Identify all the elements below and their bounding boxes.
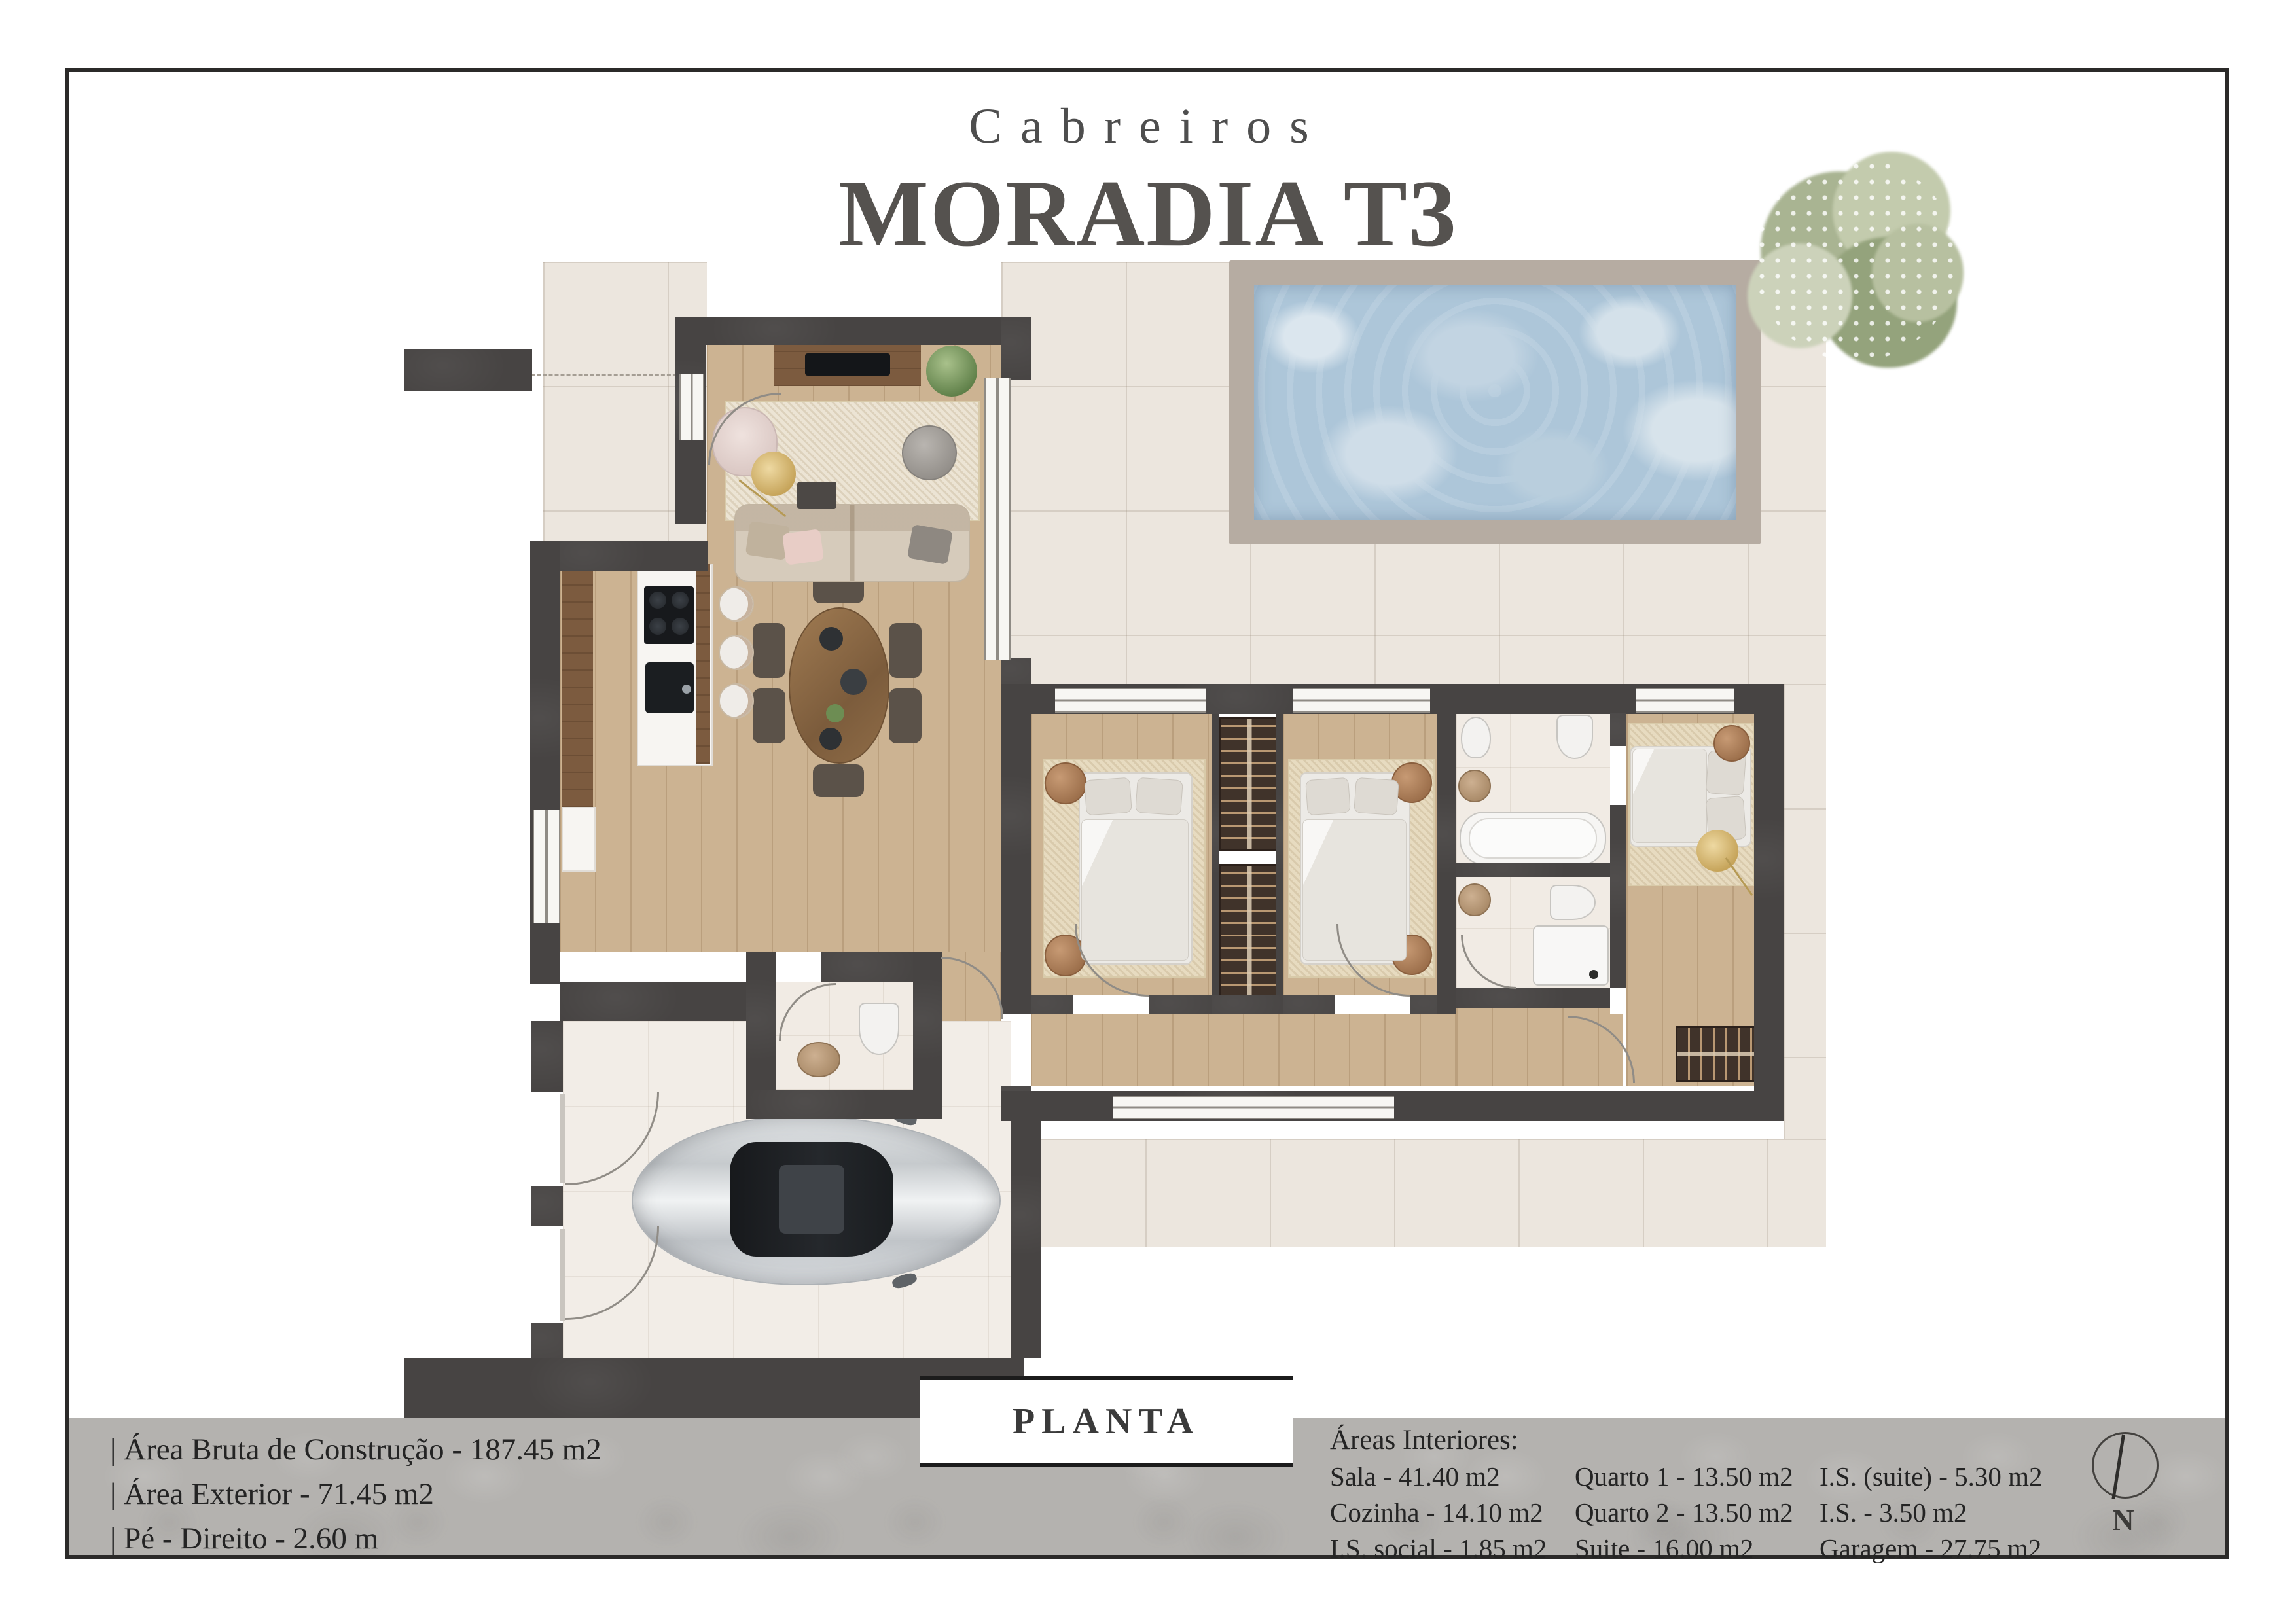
suite-duvet: [1632, 749, 1707, 843]
wall-bath-bottom: [1456, 988, 1610, 1008]
wall-hall-seg: [1149, 995, 1212, 1014]
kitchen-counter: [562, 555, 593, 807]
wall-wc-bottom: [746, 1090, 942, 1119]
window-kitchen: [533, 810, 560, 923]
summary-line-3: | Pé - Direito - 2.60 m: [110, 1521, 378, 1556]
bath-sink: [1458, 883, 1491, 916]
dining-chair: [813, 764, 864, 797]
wall-hall-seg: [1283, 995, 1335, 1014]
compass-icon: [2092, 1432, 2159, 1499]
dinner-plate: [840, 669, 867, 695]
wall-entry-top: [675, 317, 1006, 345]
areas-col1-row3: I.S. social - 1.85 m2: [1330, 1533, 1547, 1564]
patio-bottom-strip: [1021, 1139, 1826, 1247]
bath-sink: [1458, 770, 1491, 802]
window-quarto2: [1293, 688, 1430, 713]
areas-col3-row1: I.S. (suite) - 5.30 m2: [1820, 1461, 2043, 1492]
car-roof: [779, 1165, 844, 1234]
wall-garage-top: [560, 982, 746, 1021]
dining-chair: [753, 688, 785, 743]
cooktop-burner: [672, 618, 689, 635]
wall-hall-seg: [1212, 995, 1283, 1014]
window-block-bottom: [1113, 1096, 1394, 1119]
car: [632, 1116, 998, 1283]
wall-quarto2-bath: [1437, 713, 1456, 1014]
wall-living-right-upper: [1001, 317, 1031, 380]
floor-kitchen-dining: [560, 543, 1001, 952]
areas-col3-row3: Garagem - 27.75 m2: [1820, 1533, 2041, 1564]
wall-quarto1-closet: [1212, 713, 1219, 1014]
quarto2-pillow: [1354, 777, 1399, 815]
wall-bath-suite-upper: [1610, 713, 1626, 746]
sofa-cushion-dark: [907, 524, 953, 565]
tv: [805, 353, 890, 376]
summary-line-1: | Área Bruta de Construção - 187.45 m2: [110, 1432, 601, 1467]
window-suite: [1636, 688, 1734, 713]
suite-side-table: [1713, 725, 1750, 762]
toilet-suite-bath: [1556, 715, 1593, 759]
dinner-plate: [819, 627, 843, 651]
dining-chair: [889, 623, 922, 678]
wall-closet-quarto2: [1276, 713, 1283, 1014]
areas-col2-row1: Quarto 1 - 13.50 m2: [1575, 1461, 1793, 1492]
exterior-wall-stub: [404, 349, 532, 391]
areas-col1-row2: Cozinha - 14.10 m2: [1330, 1497, 1543, 1528]
suite-wardrobe: [1676, 1026, 1757, 1082]
door-arc-suite: [1568, 1016, 1635, 1083]
bidet: [1461, 717, 1491, 758]
cooktop-burner: [672, 592, 689, 609]
quarto2-pillow: [1305, 777, 1351, 815]
potted-plant: [926, 346, 977, 397]
dining-chair: [889, 688, 922, 743]
window-living-glass: [984, 378, 1011, 660]
quarto1-pillow: [1084, 777, 1132, 816]
bar-stool: [719, 683, 754, 719]
wall-garage-left-b: [531, 1186, 563, 1226]
closet-quarto2: [1219, 864, 1280, 999]
wall-block-right: [1754, 684, 1784, 1121]
kitchen-faucet: [682, 685, 691, 694]
quarto1-pillow: [1135, 777, 1183, 816]
plan-label: PLANTA: [1013, 1400, 1200, 1442]
wall-garage-right: [1011, 1119, 1041, 1358]
wall-garage-left-c: [531, 1323, 563, 1358]
closet-quarto1: [1219, 717, 1280, 851]
summary-line-2: | Área Exterior - 71.45 m2: [110, 1476, 434, 1512]
areas-col3-row2: I.S. - 3.50 m2: [1820, 1497, 1967, 1528]
window-entry-left: [679, 374, 704, 440]
garage-door-leaf: [560, 1229, 565, 1321]
areas-col2-row2: Quarto 2 - 13.50 m2: [1575, 1497, 1793, 1528]
dinner-plate: [819, 728, 842, 750]
floor-plan-sheet: Cabreiros MORADIA T3: [0, 0, 2296, 1623]
areas-col2-row3: Suite - 16.00 m2: [1575, 1533, 1753, 1564]
compass-label: N: [2092, 1503, 2155, 1537]
brand-title: Cabreiros: [0, 98, 2296, 155]
sofa-cushion-pink: [782, 529, 824, 565]
plan-label-box: PLANTA: [920, 1376, 1293, 1467]
wall-bath-divider: [1456, 863, 1610, 877]
wall-hall-seg: [1031, 995, 1073, 1014]
quarto1-side-table: [1045, 762, 1086, 804]
areas-col1-row1: Sala - 41.40 m2: [1330, 1461, 1500, 1492]
wall-garage-left-a: [531, 1021, 563, 1092]
wall-living-right-lower: [1001, 658, 1031, 685]
shower-drain: [1589, 970, 1598, 979]
pool-water: [1254, 285, 1736, 520]
wall-block-left-upper: [1001, 684, 1031, 1014]
wc-toilet: [859, 1003, 899, 1055]
stone-side-table: [902, 425, 957, 480]
cooktop-burner: [649, 618, 666, 635]
wc-sink: [797, 1042, 840, 1077]
areas-heading: Áreas Interiores:: [1330, 1424, 1518, 1456]
island-wood-edge: [696, 564, 710, 764]
dining-chair: [753, 623, 785, 678]
toilet: [1550, 885, 1596, 920]
bar-stool: [719, 586, 754, 622]
cooktop-burner: [649, 592, 666, 609]
bar-stool: [719, 635, 754, 670]
garage-door-leaf: [560, 1094, 565, 1183]
table-plant: [826, 704, 844, 722]
wall-bath-suite-lower: [1610, 805, 1626, 988]
sofa-tray: [797, 482, 836, 509]
page-title: MORADIA T3: [0, 158, 2296, 268]
window-quarto1: [1055, 688, 1206, 713]
kitchen-appliance: [562, 807, 596, 872]
bathtub-inner: [1469, 818, 1597, 859]
